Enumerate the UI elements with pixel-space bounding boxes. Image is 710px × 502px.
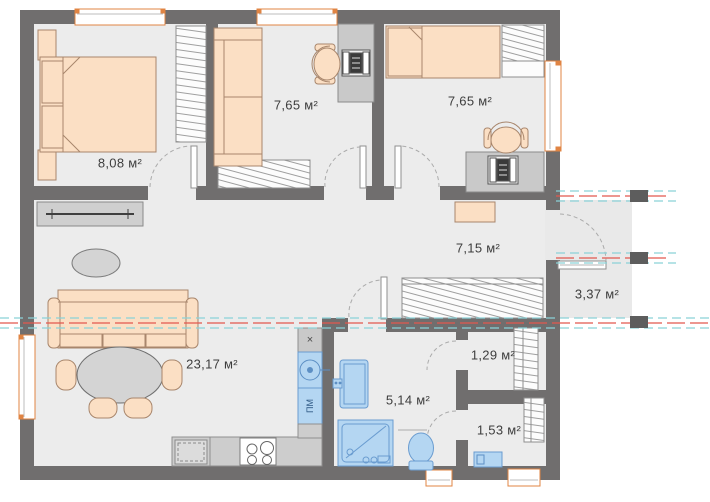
wardrobe-bedroom-right <box>502 25 544 77</box>
vent-symbol: × <box>298 328 322 352</box>
room-label-balcony: 3,37 м² <box>575 287 619 302</box>
nightstand <box>38 150 56 180</box>
coffee-table <box>72 249 120 277</box>
window-bathroom <box>426 470 452 486</box>
room-label-room-middle: 7,65 м² <box>274 98 318 113</box>
fridge <box>175 440 207 464</box>
kitchen-counter <box>172 437 322 466</box>
shelf <box>455 202 495 222</box>
stove <box>240 438 276 465</box>
shower-cabin <box>338 420 393 466</box>
water-heater <box>474 452 502 467</box>
dishwasher-label-text: ПМ <box>305 399 315 413</box>
room-label-wc: 1,53 м² <box>477 423 521 438</box>
wardrobe-closet <box>514 328 538 390</box>
floor-plan: 8,08 м² 7,65 м² 7,65 м² 7,15 м² 3,37 м² … <box>0 0 710 502</box>
toilet <box>409 433 434 470</box>
shelf-wc <box>524 398 544 442</box>
window-room-middle <box>257 9 337 25</box>
room-label-closet: 1,29 м² <box>471 348 515 363</box>
balcony-pillars <box>630 190 648 328</box>
room-label-bedroom-right: 7,65 м² <box>448 94 492 109</box>
floor-plan-canvas <box>0 0 710 502</box>
window-bedroom-right <box>545 61 561 151</box>
wc-fixtures <box>474 452 502 467</box>
sofa-small <box>214 28 262 166</box>
printer <box>488 156 518 184</box>
wardrobe-bedroom-main <box>176 26 206 142</box>
dining-table <box>77 347 163 403</box>
wardrobe-hallway <box>402 278 543 318</box>
hallway-furniture <box>455 202 495 222</box>
sofa-main <box>48 290 198 348</box>
printer <box>342 50 370 76</box>
dishwasher-label: ПМ <box>298 388 322 424</box>
double-bed <box>40 57 156 152</box>
window-wc <box>508 469 540 486</box>
window-bedroom-main <box>75 9 165 25</box>
window-living <box>19 335 35 419</box>
room-label-bathroom: 5,14 м² <box>386 393 430 408</box>
nightstand <box>38 30 56 60</box>
room-label-living-kitchen: 23,17 м² <box>186 357 238 372</box>
tv-stand <box>37 202 143 226</box>
room-label-hallway: 7,15 м² <box>456 241 500 256</box>
balcony-railing-top <box>556 191 676 201</box>
single-bed <box>386 26 500 78</box>
room-label-bedroom-main: 8,08 м² <box>98 156 142 171</box>
